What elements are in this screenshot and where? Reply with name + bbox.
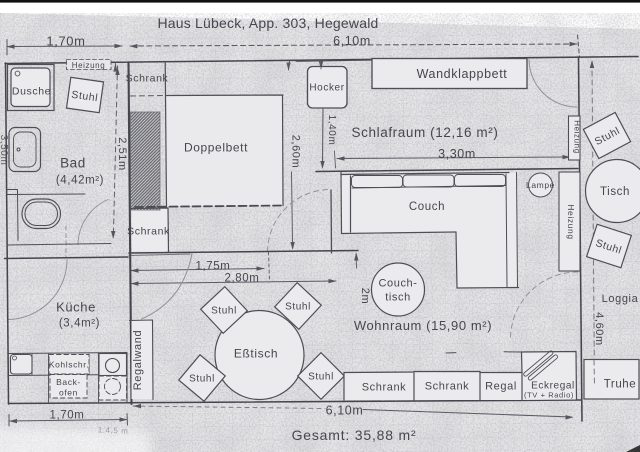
svg-text:3,50m: 3,50m xyxy=(0,135,9,166)
svg-text:Kohlschr.: Kohlschr. xyxy=(49,360,89,370)
svg-text:3,30m: 3,30m xyxy=(438,147,476,161)
svg-text:1,40m: 1,40m xyxy=(326,115,337,146)
svg-text:tisch: tisch xyxy=(385,292,411,304)
svg-text:Haus Lübeck, App. 303, Hegewal: Haus Lübeck, App. 303, Hegewald xyxy=(157,15,378,31)
svg-text:2,60m: 2,60m xyxy=(290,135,302,169)
svg-text:Wohnraum (15,90 m²): Wohnraum (15,90 m²) xyxy=(354,318,492,333)
svg-text:Eßtisch: Eßtisch xyxy=(234,347,278,361)
svg-text:(4,42m²): (4,42m²) xyxy=(56,175,104,187)
svg-text:Stuhl: Stuhl xyxy=(189,374,215,385)
svg-text:Tisch: Tisch xyxy=(600,186,630,198)
svg-text:Heizung: Heizung xyxy=(573,120,582,154)
svg-text:Regalwand: Regalwand xyxy=(132,330,144,390)
svg-text:6,10m: 6,10m xyxy=(326,404,364,418)
svg-text:Couch-: Couch- xyxy=(378,278,417,290)
svg-text:Schrank: Schrank xyxy=(362,382,407,394)
svg-text:Couch: Couch xyxy=(409,201,445,213)
svg-text:Heizung: Heizung xyxy=(72,61,106,70)
svg-text:Doppelbett: Doppelbett xyxy=(184,141,248,155)
svg-text:Stuhl: Stuhl xyxy=(211,306,237,317)
svg-text:Schrank: Schrank xyxy=(127,226,170,238)
svg-text:Stuhl: Stuhl xyxy=(308,372,334,383)
svg-text:2,51m: 2,51m xyxy=(116,137,128,171)
svg-text:Stuhl: Stuhl xyxy=(285,302,311,313)
svg-text:Hocker: Hocker xyxy=(309,83,344,94)
svg-text:4,60m: 4,60m xyxy=(593,312,605,346)
svg-text:Wandklappbett: Wandklappbett xyxy=(417,67,508,81)
svg-text:Dusche: Dusche xyxy=(12,86,51,98)
svg-text:Lampe: Lampe xyxy=(526,180,555,190)
svg-text:Regal: Regal xyxy=(485,381,517,393)
svg-text:Schrank: Schrank xyxy=(425,381,470,393)
svg-text:Heizung: Heizung xyxy=(566,204,576,239)
svg-text:6,10m: 6,10m xyxy=(333,34,371,48)
svg-text:1,70m: 1,70m xyxy=(50,410,85,422)
svg-text:Truhe: Truhe xyxy=(604,379,637,391)
svg-text:Schlafraum (12,16 m²): Schlafraum (12,16 m²) xyxy=(352,125,499,140)
svg-text:Küche: Küche xyxy=(56,300,96,315)
svg-text:2m: 2m xyxy=(359,288,371,304)
svg-text:1:4,5 m: 1:4,5 m xyxy=(97,425,128,436)
svg-text:1,70m: 1,70m xyxy=(46,34,85,49)
svg-text:2,80m: 2,80m xyxy=(225,273,260,285)
svg-text:(3,4m²): (3,4m²) xyxy=(59,318,100,330)
svg-text:1,75m: 1,75m xyxy=(196,261,231,273)
svg-text:Gesamt: 35,88 m²: Gesamt: 35,88 m² xyxy=(292,427,417,443)
svg-text:(TV + Radio): (TV + Radio) xyxy=(524,391,574,400)
svg-text:ofen: ofen xyxy=(59,388,78,398)
svg-text:Loggia: Loggia xyxy=(602,293,639,305)
svg-text:Bad: Bad xyxy=(60,156,86,171)
svg-text:Back-: Back- xyxy=(56,377,81,387)
svg-text:Schrank: Schrank xyxy=(126,73,169,85)
